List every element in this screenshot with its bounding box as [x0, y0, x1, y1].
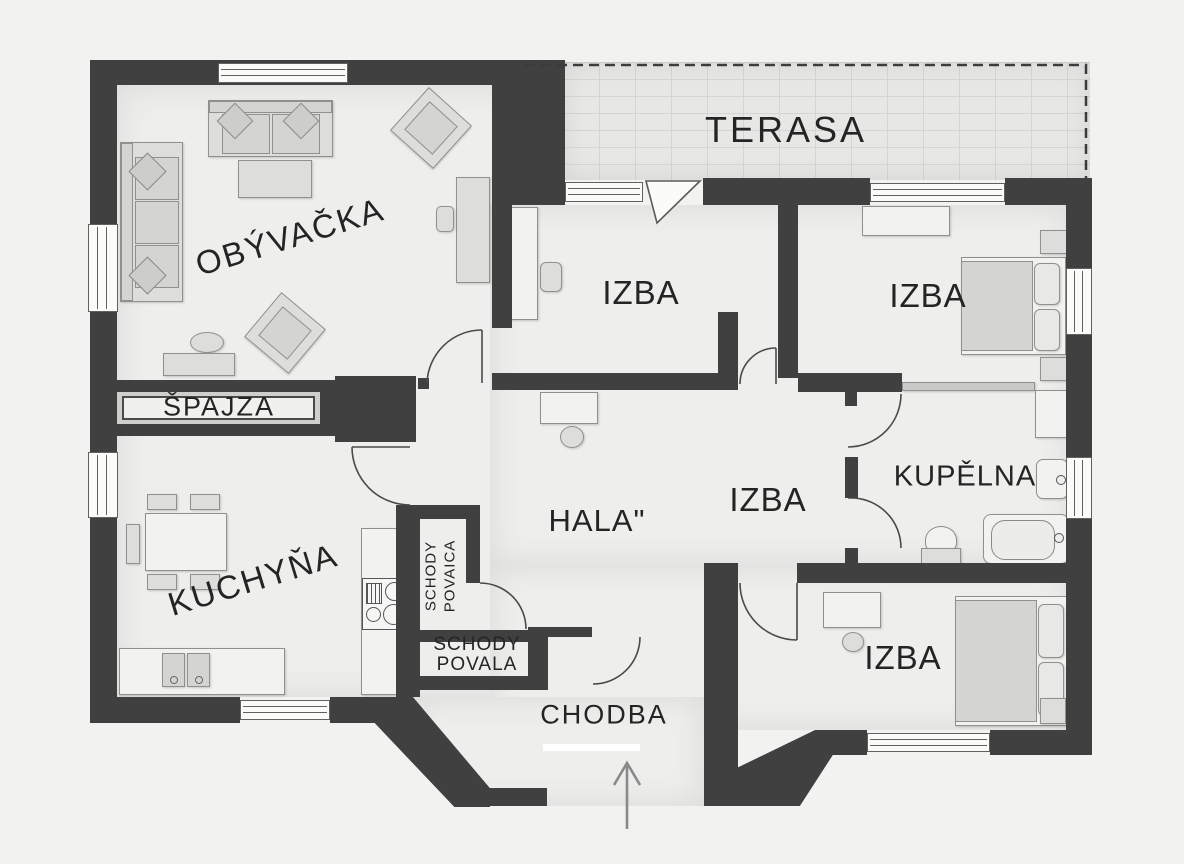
room-label-chodba: CHODBA [540, 700, 668, 731]
door-arc [740, 583, 797, 640]
schody-vert-line2: POVAICA [441, 540, 458, 613]
schody-line1: SCHODY [433, 634, 520, 655]
door-and-annotation-overlay [0, 0, 1184, 864]
door-arc [740, 348, 776, 384]
room-label-hala: HALA" [549, 503, 646, 539]
room-label-izba-top-right: IZBA [889, 277, 966, 315]
door-arc [593, 637, 640, 684]
room-label-spajza: ŠPAJZA [163, 392, 275, 423]
door-arc [848, 394, 901, 447]
schody-line2: POVALA [437, 654, 518, 675]
room-label-schody-povala: SCHODY POVALA [433, 635, 520, 675]
room-label-izba-bottom: IZBA [864, 639, 941, 677]
schody-vert-line1: SCHODY [422, 541, 439, 611]
door-arc [352, 447, 410, 505]
terrace-door-leaf [646, 181, 700, 223]
room-label-kupelna: KUPĚLNA [894, 461, 1036, 494]
door-arc [427, 330, 482, 383]
entrance-threshold [543, 744, 640, 751]
room-label-terasa: TERASA [705, 109, 867, 151]
room-label-izba-middle: IZBA [729, 481, 806, 519]
room-label-izba-top-center: IZBA [602, 274, 679, 312]
room-label-schody-vertical: SCHODY POVAICA [422, 540, 460, 613]
door-arc [848, 498, 901, 548]
entrance-arrow-icon [614, 763, 640, 829]
floor-plan: OBÝVAČKA TERASA IZBA IZBA ŠPAJZA KUCHYŇA… [0, 0, 1184, 864]
door-arc [480, 583, 526, 629]
